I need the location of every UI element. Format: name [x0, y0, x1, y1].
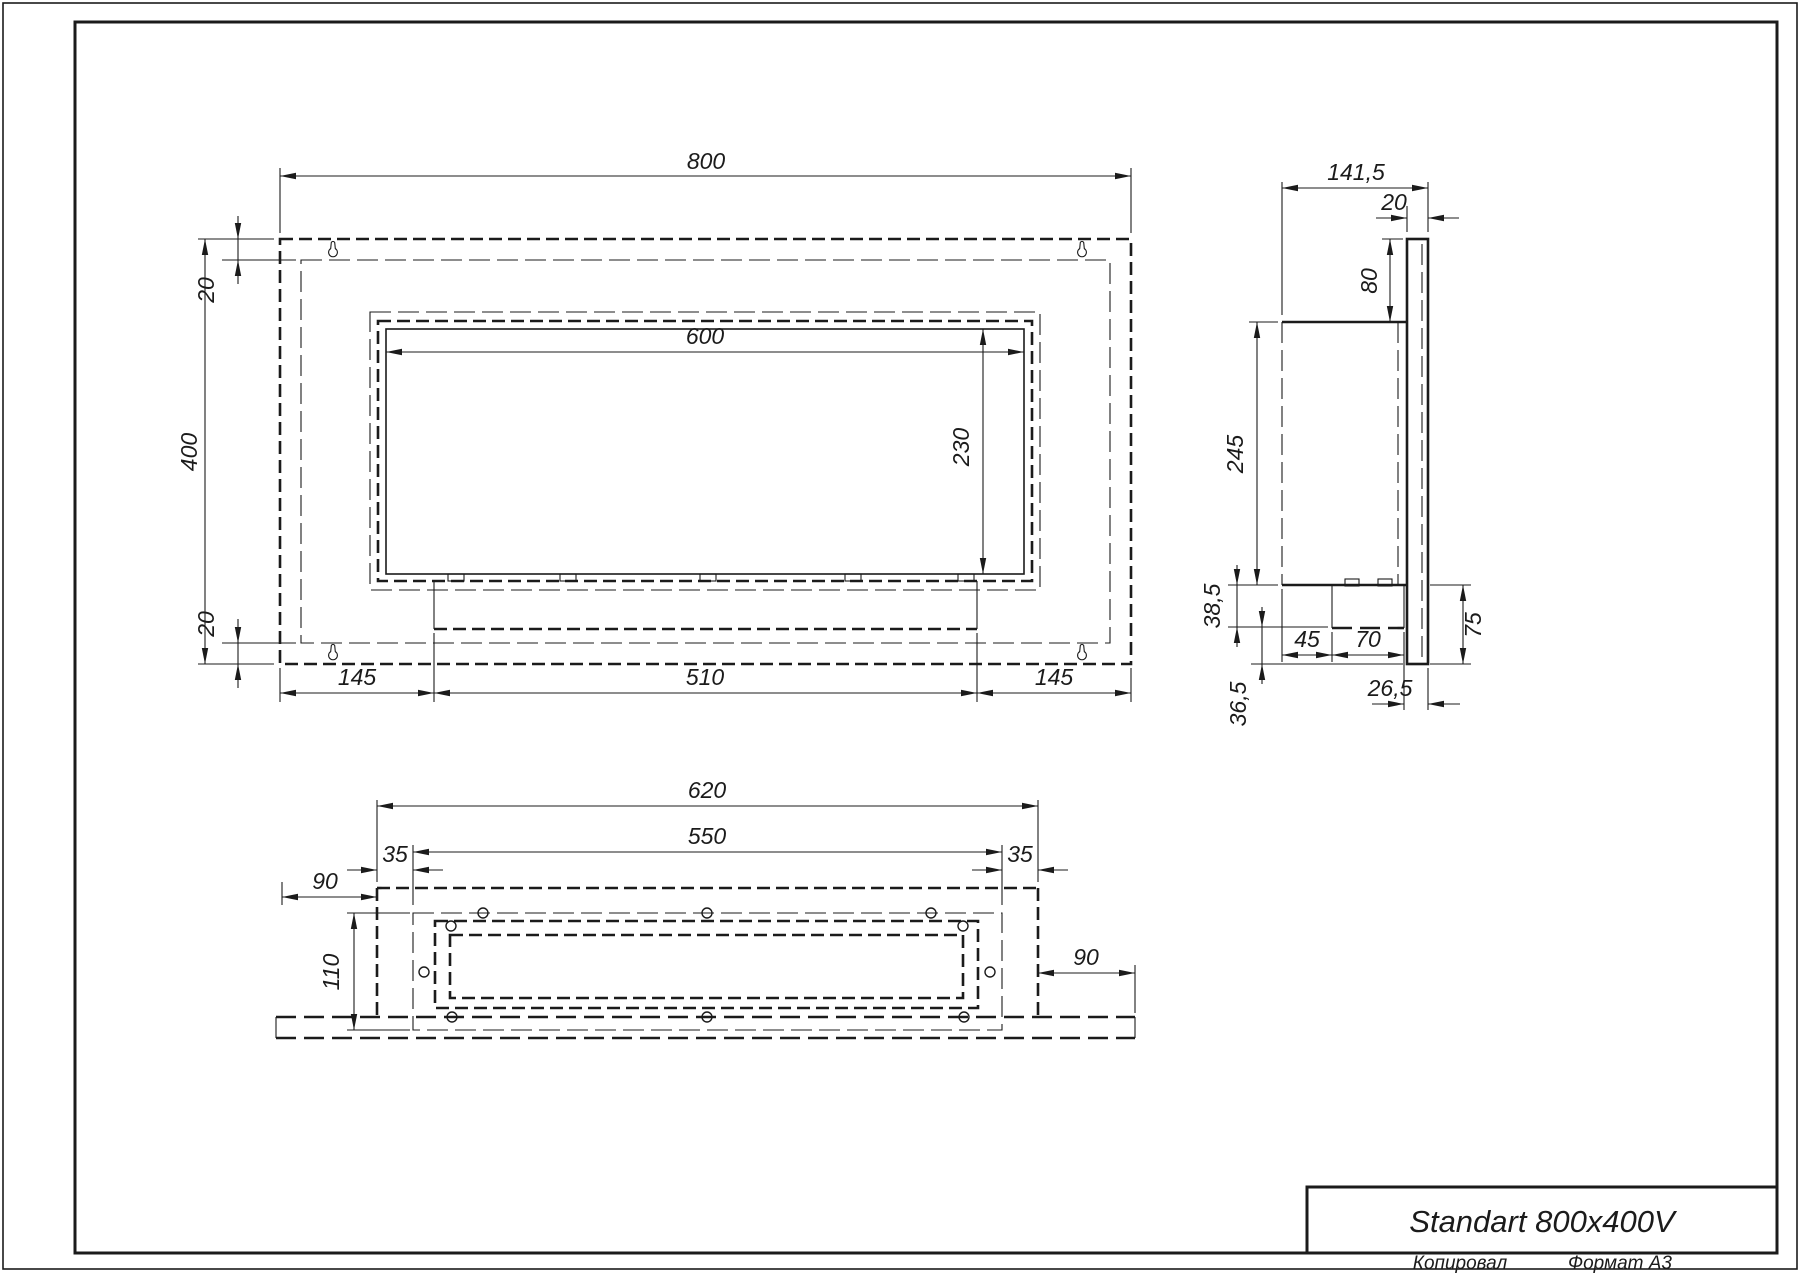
dimension-arrow: [235, 223, 241, 239]
dimension-arrow: [1259, 611, 1265, 627]
dimension-arrow: [1412, 185, 1428, 191]
dim-side-20: 20: [1380, 189, 1407, 215]
title-block: Standart 800x400V Копировал Формат A3: [1307, 1187, 1777, 1273]
firebox-outline: [378, 321, 1032, 581]
dim-side-75: 75: [1460, 612, 1486, 638]
dimension-arrow: [1282, 185, 1298, 191]
firebox-outer-outline: [370, 312, 1040, 590]
dimension-arrow: [1460, 585, 1466, 601]
dimension-arrow: [1388, 652, 1404, 658]
keyhole-mount-icon: [329, 644, 338, 659]
screw-hole: [419, 967, 429, 977]
dim-side-141-5: 141,5: [1327, 159, 1385, 185]
dimension-arrow: [961, 690, 977, 696]
panel-inner-outline: [301, 260, 1110, 643]
dim-bottom-90-left: 90: [312, 868, 338, 894]
copied-label: Копировал: [1413, 1253, 1508, 1273]
dimension-arrow: [977, 690, 993, 696]
dimension-arrow: [235, 260, 241, 276]
dim-front-145-left: 145: [338, 664, 377, 690]
dim-front-600: 600: [686, 323, 725, 349]
screw-hole: [985, 967, 995, 977]
outer-border: [3, 3, 1797, 1269]
dim-front-20-top: 20: [193, 277, 219, 304]
dim-front-510: 510: [686, 664, 725, 690]
dimension-arrow: [1388, 701, 1404, 707]
dimension-arrow: [1008, 349, 1024, 355]
dimension-arrow: [1115, 690, 1131, 696]
drawing-canvas: Standart 800x400V Копировал Формат A3 80…: [0, 0, 1800, 1273]
dim-side-245: 245: [1222, 435, 1248, 475]
side-view: 141,5208024538,536,5457026,575: [1199, 159, 1486, 726]
dim-bottom-110: 110: [318, 953, 344, 990]
dim-side-70: 70: [1355, 626, 1381, 652]
dimension-arrow: [202, 648, 208, 664]
dimension-arrow: [980, 329, 986, 345]
dim-side-38-5: 38,5: [1199, 583, 1225, 628]
screw-hole: [446, 921, 456, 931]
dimension-arrow: [1460, 648, 1466, 664]
drawing-sheet: Standart 800x400V Копировал Формат A3 80…: [0, 0, 1800, 1273]
dimension-arrow: [1234, 569, 1240, 585]
keyhole-mount-icon: [329, 241, 338, 256]
slot-inner-outline: [450, 935, 963, 998]
dimension-arrow: [202, 239, 208, 255]
dimension-arrow: [282, 894, 298, 900]
dimension-arrow: [1254, 569, 1260, 585]
dimension-arrow: [1115, 173, 1131, 179]
drawing-frame: [75, 22, 1777, 1253]
dimension-arrow: [1259, 664, 1265, 680]
dimension-arrow: [351, 1014, 357, 1030]
dimension-arrow: [1391, 215, 1407, 221]
dimension-arrow: [386, 349, 402, 355]
dimension-arrow: [1254, 322, 1260, 338]
panel-edge: [1407, 239, 1428, 664]
dimension-arrow: [235, 627, 241, 643]
dim-side-80: 80: [1356, 268, 1382, 294]
dim-front-145-right: 145: [1035, 664, 1074, 690]
dimension-arrow: [418, 690, 434, 696]
dimension-arrow: [280, 690, 296, 696]
dimension-arrow: [434, 690, 450, 696]
drawing-title: Standart 800x400V: [1409, 1204, 1678, 1239]
dimension-arrow: [1022, 803, 1038, 809]
dim-bottom-35-left: 35: [382, 841, 408, 867]
dimension-arrow: [1038, 867, 1054, 873]
dim-front-800: 800: [687, 148, 726, 174]
dimension-arrow: [1282, 652, 1298, 658]
bottom-view: 62055035359090110: [276, 777, 1135, 1038]
dimension-arrow: [361, 894, 377, 900]
dimension-arrow: [1119, 970, 1135, 976]
dimension-arrow: [980, 558, 986, 574]
dimension-arrow: [1428, 215, 1444, 221]
dimension-arrow: [413, 849, 429, 855]
panel-outline: [280, 239, 1131, 664]
dimension-arrow: [1387, 306, 1393, 322]
dim-side-45: 45: [1294, 626, 1320, 652]
dim-side-36-5: 36,5: [1225, 681, 1251, 726]
dimension-arrow: [413, 867, 429, 873]
dim-front-230: 230: [948, 428, 974, 468]
dim-front-20-bottom: 20: [193, 611, 219, 638]
dim-front-400: 400: [176, 433, 202, 472]
opening-outline: [386, 329, 1024, 574]
dimension-arrow: [1316, 652, 1332, 658]
dimension-arrow: [235, 664, 241, 680]
dimension-arrow: [351, 913, 357, 929]
dim-bottom-550: 550: [688, 823, 727, 849]
format-label: Формат A3: [1568, 1253, 1672, 1273]
dimension-arrow: [361, 867, 377, 873]
dimension-arrow: [986, 867, 1002, 873]
dim-bottom-35-right: 35: [1007, 841, 1033, 867]
dimension-arrow: [1038, 970, 1054, 976]
dim-side-26-5: 26,5: [1367, 675, 1413, 701]
front-view: 8004002020600230145510145: [176, 148, 1131, 702]
dimension-arrow: [1387, 239, 1393, 255]
dim-bottom-620: 620: [688, 777, 727, 803]
screw-hole: [958, 921, 968, 931]
dimension-arrow: [1428, 701, 1444, 707]
dimension-arrow: [986, 849, 1002, 855]
dimension-arrow: [1234, 627, 1240, 643]
dimension-arrow: [377, 803, 393, 809]
dim-bottom-90-right: 90: [1073, 944, 1099, 970]
keyhole-mount-icon: [1078, 241, 1087, 256]
dimension-arrow: [1332, 652, 1348, 658]
dimension-arrow: [280, 173, 296, 179]
keyhole-mount-icon: [1078, 644, 1087, 659]
